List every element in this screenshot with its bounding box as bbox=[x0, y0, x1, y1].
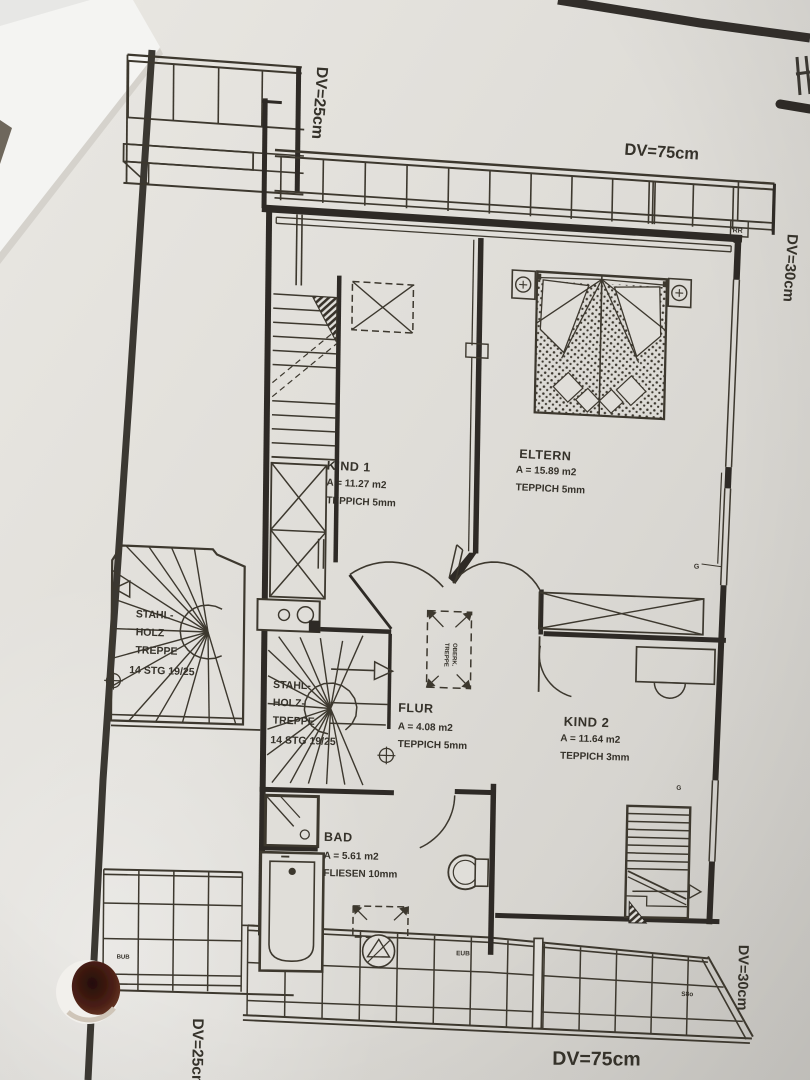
svg-text:A = 5.61 m2: A = 5.61 m2 bbox=[324, 851, 380, 863]
svg-text:G: G bbox=[694, 564, 700, 571]
svg-text:DV=75cm: DV=75cm bbox=[552, 1048, 641, 1071]
svg-text:DV=25cm: DV=25cm bbox=[188, 1018, 206, 1080]
svg-text:TEPPICH 3mm: TEPPICH 3mm bbox=[560, 751, 630, 764]
svg-text:HOLZ: HOLZ bbox=[135, 626, 165, 639]
svg-text:RR: RR bbox=[732, 227, 743, 235]
svg-text:STAHL-: STAHL- bbox=[273, 679, 312, 692]
svg-text:S8o: S8o bbox=[681, 991, 693, 998]
svg-text:FLIESEN 10mm: FLIESEN 10mm bbox=[323, 868, 397, 881]
svg-text:EUB: EUB bbox=[456, 950, 470, 957]
svg-text:KIND 2: KIND 2 bbox=[564, 714, 610, 730]
svg-text:FLUR: FLUR bbox=[398, 701, 434, 716]
svg-text:BAD: BAD bbox=[324, 830, 353, 845]
svg-text:A = 11.64 m2: A = 11.64 m2 bbox=[560, 733, 621, 746]
svg-text:G: G bbox=[676, 785, 681, 792]
svg-text:DV=30cm: DV=30cm bbox=[734, 945, 751, 1011]
svg-text:TREPPE: TREPPE bbox=[442, 643, 449, 667]
svg-text:OBERK.: OBERK. bbox=[450, 643, 457, 667]
svg-text:ELTERN: ELTERN bbox=[519, 447, 572, 464]
svg-text:A = 4.08 m2: A = 4.08 m2 bbox=[398, 721, 454, 734]
svg-text:14 STG 19/25: 14 STG 19/25 bbox=[270, 734, 336, 748]
svg-text:KIND 1: KIND 1 bbox=[326, 459, 371, 475]
svg-text:TREPPE: TREPPE bbox=[135, 644, 177, 657]
svg-text:TEPPICH 5mm: TEPPICH 5mm bbox=[398, 739, 468, 752]
svg-text:BUB: BUB bbox=[117, 955, 131, 961]
svg-text:14 STG 19/25: 14 STG 19/25 bbox=[129, 664, 195, 678]
svg-text:TREPPE: TREPPE bbox=[273, 715, 315, 728]
svg-text:HOLZ-: HOLZ- bbox=[273, 697, 306, 710]
svg-text:STAHL-: STAHL- bbox=[136, 608, 175, 621]
